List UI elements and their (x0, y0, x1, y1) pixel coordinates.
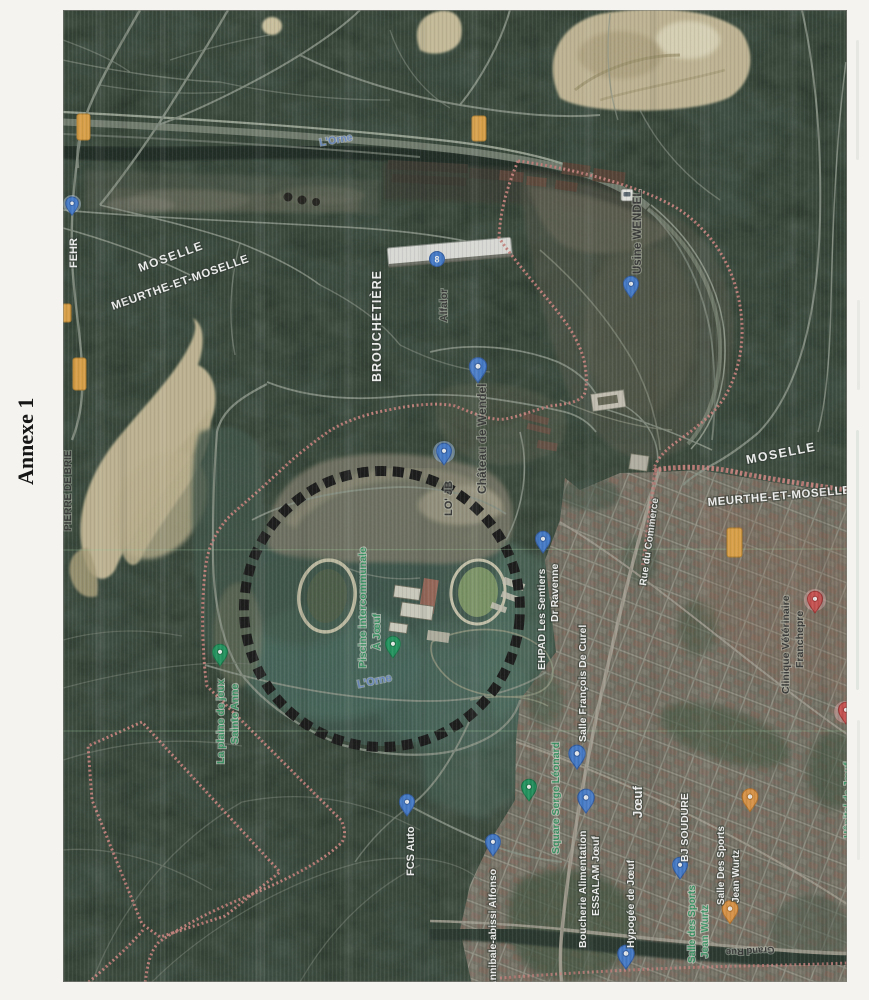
svg-text:Annexe 1: Annexe 1 (13, 398, 38, 485)
